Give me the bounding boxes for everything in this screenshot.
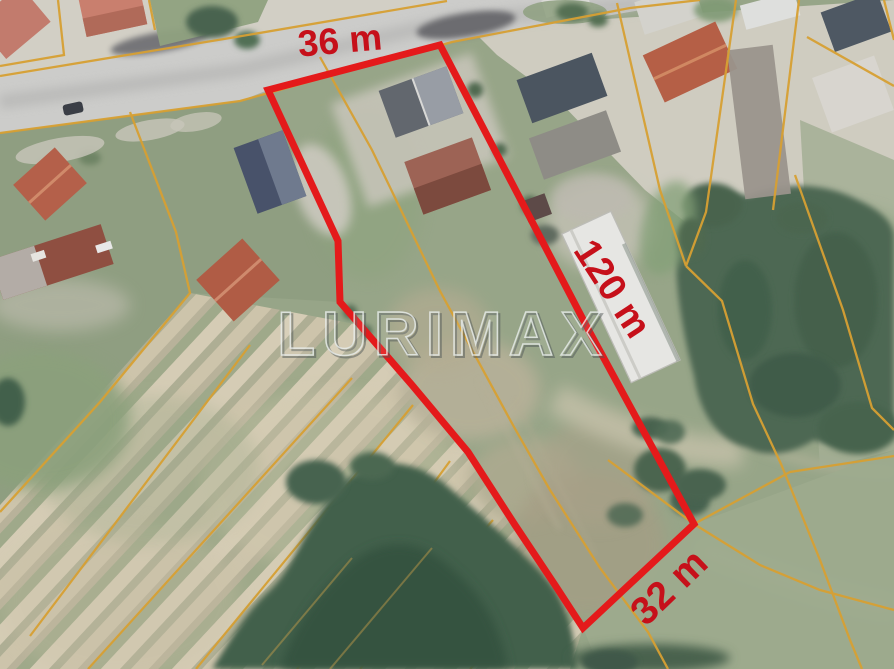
svg-text:LURIMAX: LURIMAX <box>277 300 608 369</box>
svg-text:36 m: 36 m <box>296 16 384 64</box>
